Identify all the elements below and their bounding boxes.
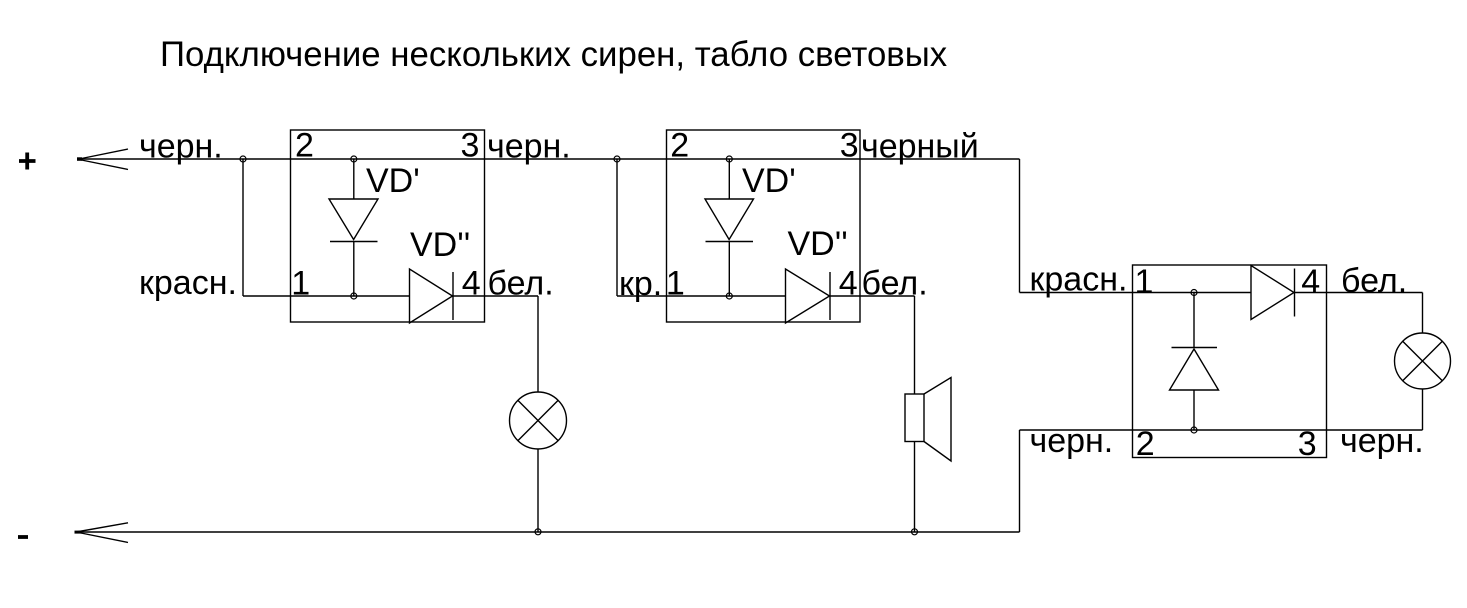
svg-text:красн.: красн.	[139, 264, 237, 302]
svg-text:Подключение нескольких сирен,: Подключение нескольких сирен, табло свет…	[160, 35, 948, 74]
svg-text:черн.: черн.	[487, 128, 571, 166]
svg-text:черный: черный	[861, 128, 979, 166]
svg-text:бел.: бел.	[1341, 262, 1407, 300]
svg-text:3: 3	[1298, 425, 1317, 463]
svg-text:VD'': VD''	[410, 226, 470, 264]
svg-text:VD'': VD''	[788, 225, 848, 263]
svg-text:2: 2	[295, 127, 314, 165]
svg-text:4: 4	[462, 265, 481, 303]
svg-text:4: 4	[1301, 263, 1320, 301]
svg-text:кр.: кр.	[619, 265, 662, 303]
svg-text:1: 1	[291, 265, 310, 303]
svg-text:2: 2	[670, 127, 689, 165]
svg-text:1: 1	[1135, 263, 1154, 301]
svg-text:VD': VD'	[366, 162, 420, 200]
svg-text:VD': VD'	[742, 162, 796, 200]
svg-text:черн.: черн.	[1340, 422, 1424, 460]
svg-text:черн.: черн.	[139, 128, 223, 166]
svg-text:4: 4	[839, 265, 858, 303]
svg-text:1: 1	[666, 265, 685, 303]
svg-text:черн.: черн.	[1030, 422, 1114, 460]
svg-text:бел.: бел.	[862, 265, 928, 303]
svg-text:3: 3	[840, 127, 859, 165]
svg-text:красн.: красн.	[1030, 261, 1128, 299]
svg-text:2: 2	[1136, 425, 1155, 463]
svg-text:бел.: бел.	[488, 265, 554, 303]
svg-text:3: 3	[461, 127, 480, 165]
